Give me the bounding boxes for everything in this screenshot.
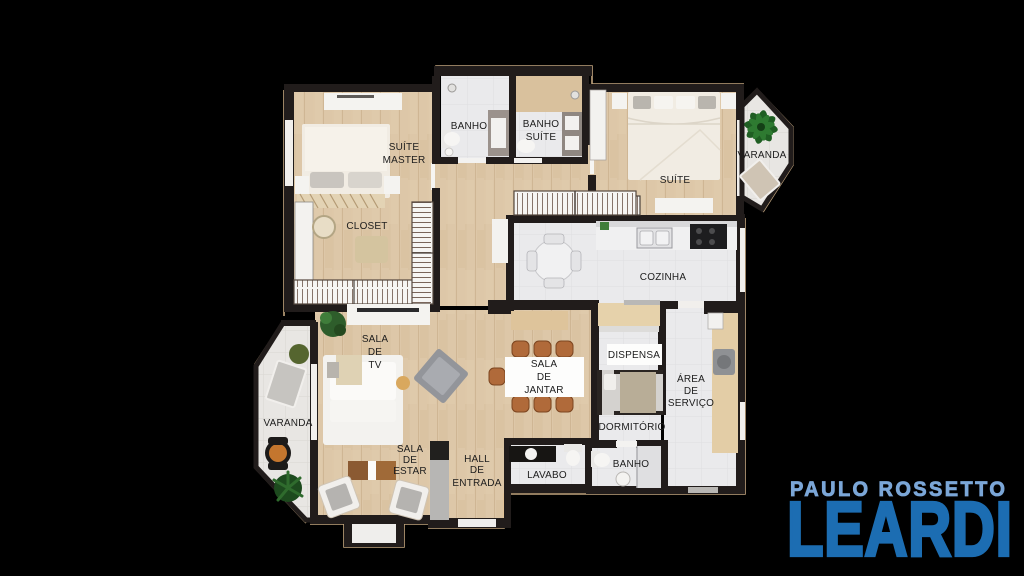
svg-text:JANTAR: JANTAR xyxy=(524,385,563,396)
svg-text:DISPENSA: DISPENSA xyxy=(608,350,660,361)
svg-text:VARANDA: VARANDA xyxy=(263,418,312,429)
svg-text:SERVIÇO: SERVIÇO xyxy=(668,398,714,409)
svg-text:COZINHA: COZINHA xyxy=(640,272,687,283)
svg-text:MASTER: MASTER xyxy=(383,155,426,166)
svg-text:SUÍTE: SUÍTE xyxy=(389,140,420,153)
svg-text:SUÍTE: SUÍTE xyxy=(526,130,557,143)
svg-text:DE: DE xyxy=(470,465,484,476)
svg-text:BANHO: BANHO xyxy=(613,459,650,470)
svg-text:ÁREA: ÁREA xyxy=(677,372,705,385)
svg-text:DORMITÓRIO: DORMITÓRIO xyxy=(599,420,666,433)
svg-text:DE: DE xyxy=(684,386,698,397)
svg-text:DE: DE xyxy=(403,455,417,466)
svg-text:BANHO: BANHO xyxy=(451,121,488,132)
svg-text:SUÍTE: SUÍTE xyxy=(660,173,691,186)
svg-text:VARANDA: VARANDA xyxy=(737,150,786,161)
svg-text:DE: DE xyxy=(537,372,551,383)
svg-text:SALA: SALA xyxy=(362,334,389,345)
svg-text:ESTAR: ESTAR xyxy=(393,466,427,477)
svg-text:HALL: HALL xyxy=(464,454,490,465)
svg-text:CLOSET: CLOSET xyxy=(346,221,387,232)
svg-text:SALA: SALA xyxy=(397,444,424,455)
svg-text:BANHO: BANHO xyxy=(523,119,560,130)
svg-text:ENTRADA: ENTRADA xyxy=(452,478,501,489)
svg-text:LAVABO: LAVABO xyxy=(527,470,567,481)
svg-text:TV: TV xyxy=(368,360,381,371)
svg-text:DE: DE xyxy=(368,347,382,358)
svg-text:SALA: SALA xyxy=(531,359,558,370)
